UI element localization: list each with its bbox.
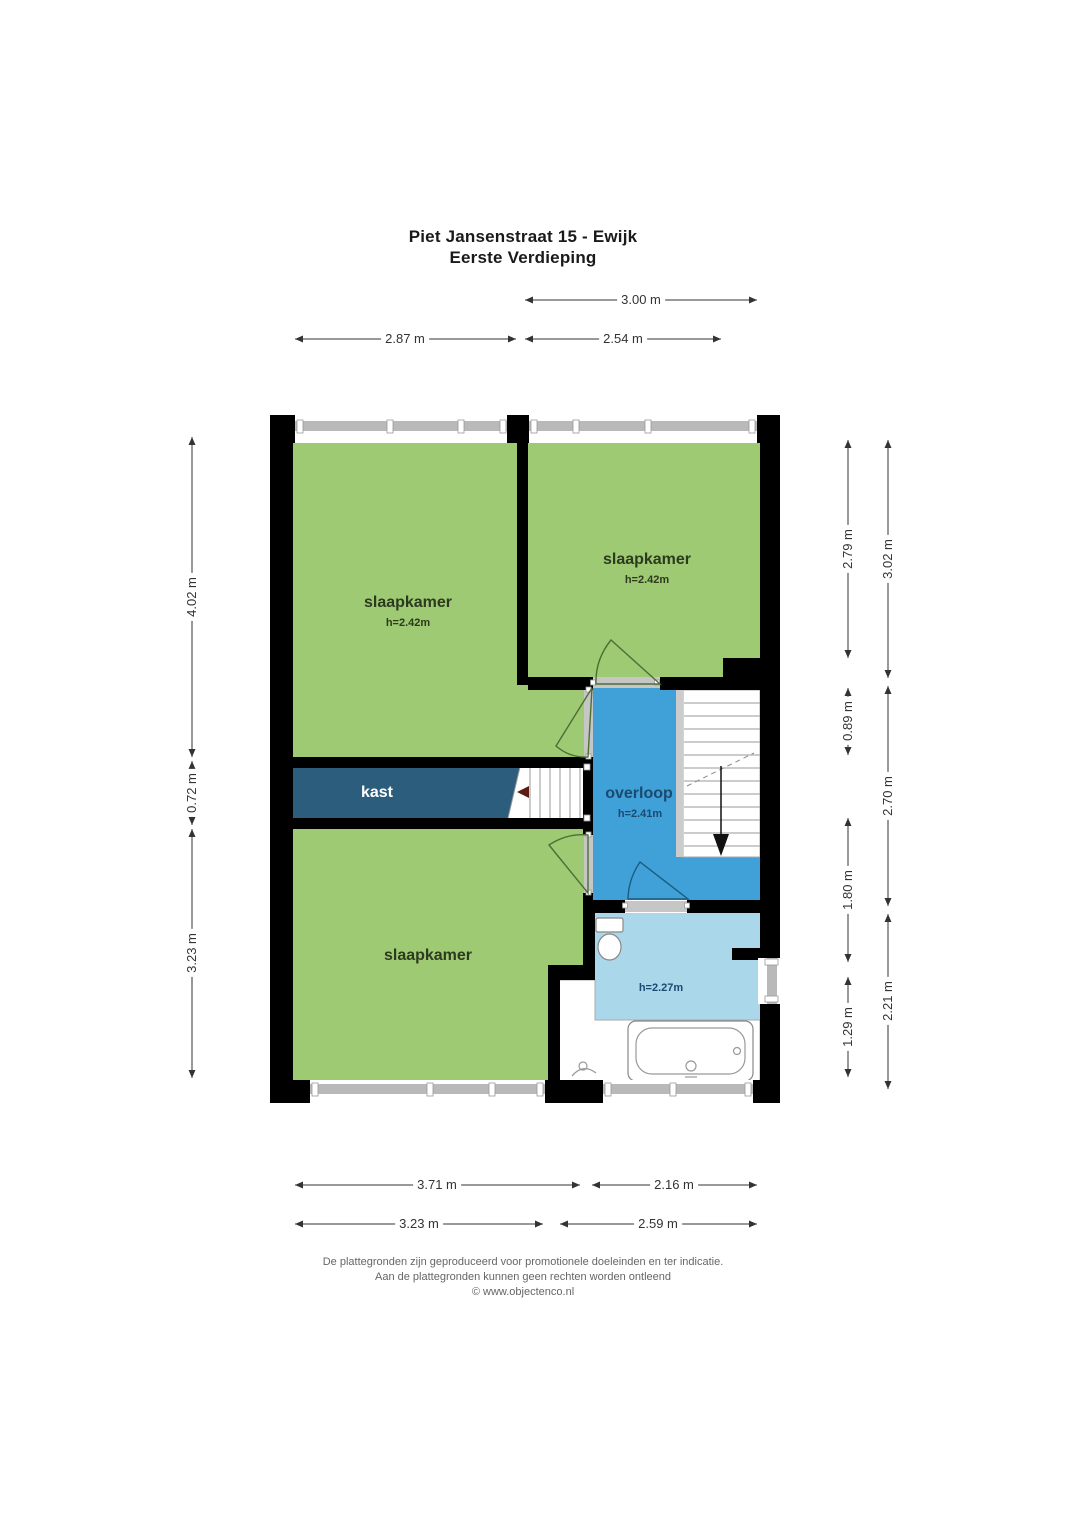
wall-landing-bottom-right <box>687 900 760 913</box>
wall-bath-step-h <box>548 965 595 980</box>
wall-divider-bedrooms <box>517 443 528 685</box>
wall-bedroom2-notch <box>723 658 760 690</box>
wall-bottom-middle <box>545 1080 603 1103</box>
wall-closet-top <box>293 757 593 768</box>
dim-bottom-inner-right: 2.16 m <box>650 1178 698 1192</box>
label-landing-height: h=2.41m <box>618 808 662 820</box>
wall-bedroom2-bottom-left <box>528 677 593 690</box>
wall-bottom-left-corner <box>270 1080 310 1103</box>
wall-top-divider-head <box>507 415 529 443</box>
room-bedroom-top-left-nook <box>517 685 593 757</box>
dim-right-outer-bottom: 2.21 m <box>881 977 895 1025</box>
dim-right-inner-landing: 1.80 m <box>841 866 855 914</box>
wall-bottom-right-corner <box>753 1080 780 1103</box>
dim-left-middle: 0.72 m <box>185 769 199 817</box>
footer-copyright: © www.objectenco.nl <box>472 1286 574 1298</box>
window-bottom-right <box>603 1080 753 1102</box>
dim-left-top: 4.02 m <box>185 573 199 621</box>
label-bedroom-top-left-height: h=2.42m <box>386 617 430 629</box>
room-closet <box>293 768 520 818</box>
window-top-left <box>295 418 507 442</box>
wall-closet-bottom <box>293 818 593 829</box>
label-landing: overloop <box>605 785 673 803</box>
wall-landing-bottom-left <box>583 900 625 913</box>
door-threshold-bathroom <box>625 901 687 912</box>
dim-bottom-inner-left: 3.71 m <box>413 1178 461 1192</box>
dim-right-outer-top: 3.02 m <box>881 535 895 583</box>
dim-top-left: 2.87 m <box>381 332 429 346</box>
door-threshold-bedroom-top-right <box>593 677 660 688</box>
window-bottom-left <box>310 1080 545 1102</box>
toilet-bowl <box>598 934 621 960</box>
wall-bath-right-notch <box>732 948 760 960</box>
dim-top-section: 3.00 m <box>617 293 665 307</box>
stairwell-edge-strip <box>676 690 683 857</box>
dim-right-inner-bath: 1.29 m <box>841 1003 855 1051</box>
label-closet: kast <box>361 784 393 802</box>
wall-left <box>270 415 293 1103</box>
bathtub <box>628 1021 753 1081</box>
dim-top-right: 2.54 m <box>599 332 647 346</box>
label-bedroom-top-right-height: h=2.42m <box>625 574 669 586</box>
label-bathroom-height: h=2.27m <box>639 982 683 994</box>
dim-left-bottom: 3.23 m <box>185 929 199 977</box>
window-bathroom-right <box>758 958 780 1004</box>
label-bedroom-top-right: slaapkamer <box>603 551 691 569</box>
dim-right-inner-top: 2.79 m <box>841 525 855 573</box>
dim-bottom-outer-right: 2.59 m <box>634 1217 682 1231</box>
label-bedroom-bottom: slaapkamer <box>384 947 472 965</box>
wall-top-left-corner <box>270 415 295 443</box>
floor-plan-drawing <box>0 0 1080 1528</box>
wall-bedroom2-bottom-right <box>660 677 723 690</box>
window-top-right <box>529 418 757 442</box>
dim-right-inner-stairs: 0.89 m <box>841 697 855 745</box>
footer-disclaimer-2: Aan de plattegronden kunnen geen rechten… <box>375 1271 671 1283</box>
toilet-tank <box>596 918 623 932</box>
footer-disclaimer-1: De plattegronden zijn geproduceerd voor … <box>323 1256 724 1268</box>
floorplan-page: Piet Jansenstraat 15 - Ewijk Eerste Verd… <box>0 0 1080 1528</box>
wall-bath-step-v2 <box>548 980 560 1082</box>
label-bedroom-top-left: slaapkamer <box>364 594 452 612</box>
dim-right-outer-middle: 2.70 m <box>881 772 895 820</box>
wall-right-upper <box>760 415 780 958</box>
dim-bottom-outer-left: 3.23 m <box>395 1217 443 1231</box>
